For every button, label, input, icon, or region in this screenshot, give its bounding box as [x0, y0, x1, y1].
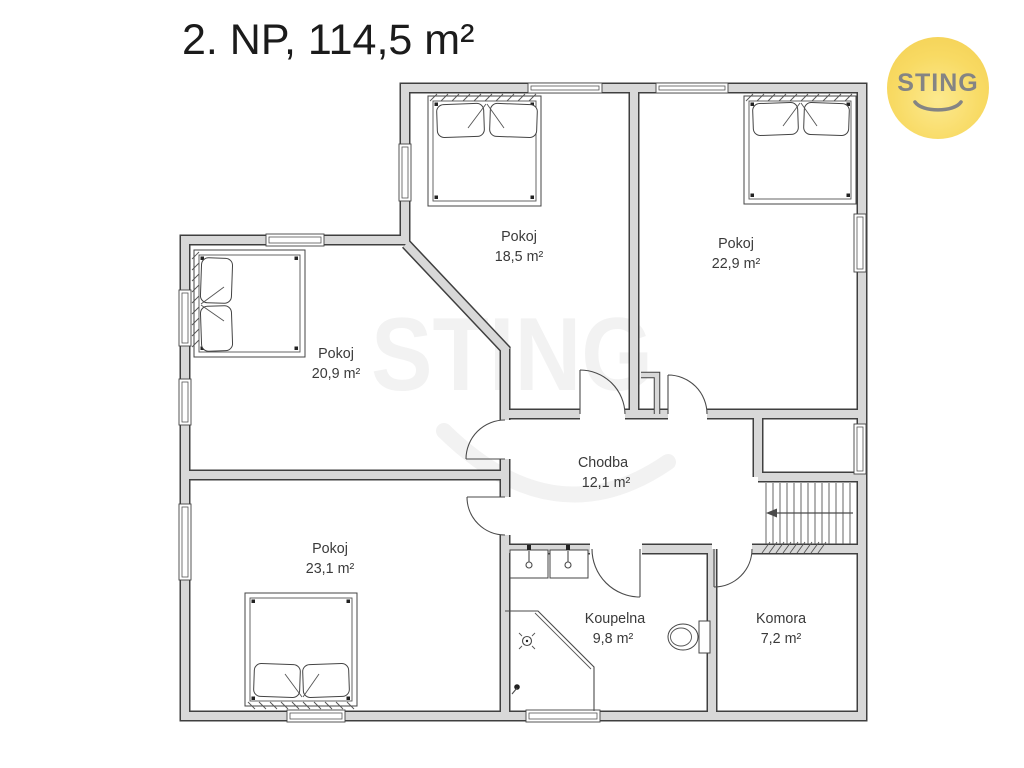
staircase — [762, 483, 853, 553]
room-label-name: Pokoj — [718, 236, 754, 252]
watermark-smile-icon — [444, 431, 668, 495]
room-label-area: 9,8 m² — [593, 631, 634, 647]
room-label-area: 22,9 m² — [712, 256, 761, 272]
room-label-area: 12,1 m² — [582, 475, 631, 491]
bed-pokoj-185 — [428, 94, 541, 206]
door-pokoj-229 — [668, 375, 707, 414]
door-koupelna — [592, 549, 640, 597]
bed-pokoj-231 — [245, 593, 357, 709]
bed-pokoj-229 — [744, 94, 856, 204]
window — [179, 504, 191, 580]
stairs-arrow-head-icon — [766, 509, 777, 518]
room-label-area: 20,9 m² — [312, 366, 361, 382]
room-label-name: Chodba — [578, 455, 628, 471]
sink — [510, 545, 548, 578]
room-label-name: Pokoj — [501, 229, 537, 245]
window — [399, 144, 411, 201]
window — [179, 290, 191, 346]
watermark-text: STING — [371, 297, 653, 413]
room-label-area: 23,1 m² — [306, 561, 355, 577]
bed-pokoj-209 — [192, 250, 305, 357]
room-label-area: 7,2 m² — [761, 631, 802, 647]
sink — [550, 545, 588, 578]
room-label-area: 18,5 m² — [495, 249, 544, 265]
window — [528, 83, 602, 93]
door-komora — [714, 549, 752, 587]
bathroom-fixtures — [505, 545, 710, 711]
window — [854, 424, 866, 474]
room-label-name: Pokoj — [318, 346, 354, 362]
room-labels: Pokoj 18,5 m² Pokoj 22,9 m² Pokoj 20,9 m… — [306, 229, 806, 647]
window — [854, 214, 866, 272]
floorplan-page: 2. NP, 114,5 m² STING STING — [0, 0, 1024, 768]
corner-shower — [505, 611, 594, 711]
window — [287, 710, 345, 722]
toilet — [668, 621, 710, 653]
floor-plan: STING — [0, 0, 1024, 768]
room-label-name: Komora — [756, 611, 806, 627]
window — [526, 710, 600, 722]
room-label-name: Pokoj — [312, 541, 348, 557]
window — [266, 234, 324, 246]
drain-icon — [514, 684, 520, 690]
window — [656, 83, 728, 93]
window — [179, 379, 191, 425]
door-pokoj-231 — [467, 497, 505, 535]
room-label-name: Koupelna — [585, 611, 645, 627]
